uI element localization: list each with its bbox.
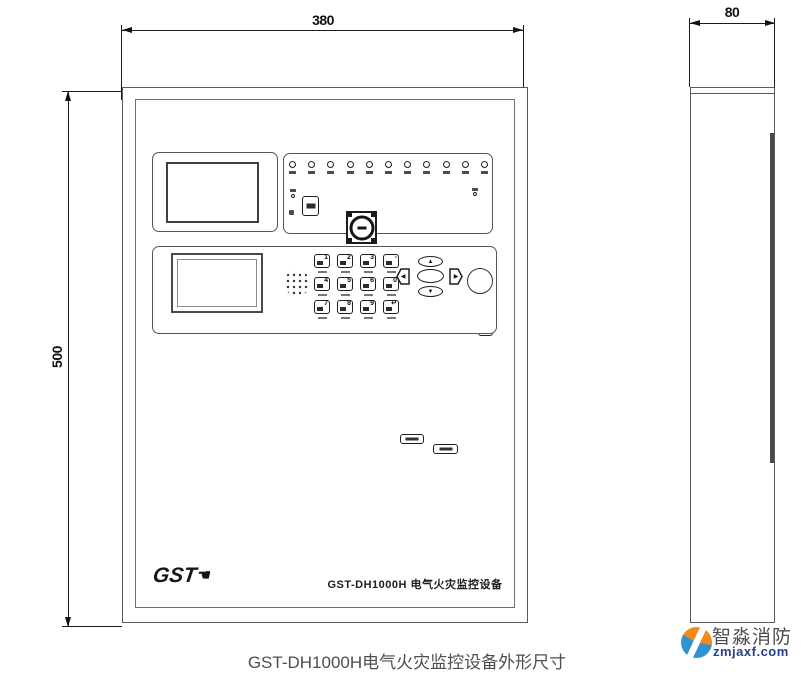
dim-label-width: 380	[293, 12, 353, 28]
indicator-led	[288, 161, 297, 174]
dim-arrow-up-icon	[65, 91, 71, 101]
key-4: 4	[314, 277, 330, 291]
dim-arrow-down-icon	[65, 617, 71, 627]
nav-down-button: ▼	[418, 286, 443, 297]
side-view-door-edge	[770, 133, 774, 463]
key-7: 7	[314, 300, 330, 314]
key-8: 8	[337, 300, 353, 314]
key-minus: -	[383, 254, 399, 268]
soft-button	[400, 434, 424, 444]
mini-led	[473, 192, 477, 196]
numeric-keypad: 1 2 3 - 4 5 6 0 7 8 9 ↵	[314, 254, 399, 314]
panel-lock	[467, 268, 493, 294]
dim-line-depth	[689, 23, 775, 24]
key-enter: ↵	[383, 300, 399, 314]
key-9: 9	[360, 300, 376, 314]
silence-button	[302, 196, 319, 216]
dim-line-height	[68, 91, 69, 627]
side-view-top-line	[690, 93, 775, 94]
soft-button	[433, 444, 458, 454]
mini-led	[291, 194, 295, 198]
dim-extension-line	[62, 91, 122, 92]
watermark-logo-icon	[681, 627, 712, 658]
indicator-led	[480, 161, 489, 174]
nav-ok-button	[417, 269, 444, 283]
key-6: 6	[360, 277, 376, 291]
drawing-canvas: 380 500 80	[0, 0, 809, 679]
figure-caption: GST-DH1000H电气火灾监控设备外形尺寸	[242, 648, 572, 673]
nav-left-button: ◀	[396, 268, 410, 285]
record-display-window	[166, 162, 259, 223]
indicator-led	[384, 161, 393, 174]
dim-extension-line	[689, 18, 690, 87]
up-arrow-icon: ▲	[428, 259, 434, 265]
mini-label	[290, 189, 296, 192]
lcd-screen	[177, 259, 257, 307]
dim-arrow-left-icon	[122, 27, 132, 33]
key-1: 1	[314, 254, 330, 268]
indicator-led	[422, 161, 431, 174]
left-arrow-icon: ◀	[401, 273, 406, 280]
right-arrow-icon: ▶	[454, 273, 459, 280]
down-arrow-icon: ▼	[428, 289, 434, 295]
dim-line-width	[121, 30, 524, 31]
indicator-led	[307, 161, 316, 174]
gst-logo: GST	[153, 564, 253, 592]
indicator-led	[403, 161, 412, 174]
dim-arrow-right-icon	[513, 27, 523, 33]
nav-right-button: ▶	[449, 268, 463, 285]
side-view-cabinet	[690, 87, 775, 623]
dim-arrow-left-icon	[690, 20, 700, 26]
indicator-led-row	[288, 161, 489, 174]
indicator-led	[326, 161, 335, 174]
dim-label-depth: 80	[702, 4, 762, 20]
key-3: 3	[360, 254, 376, 268]
indicator-led	[346, 161, 355, 174]
dim-extension-line	[62, 626, 122, 627]
nav-up-button: ▲	[418, 256, 443, 267]
mute-icon	[289, 210, 294, 215]
indicator-led	[461, 161, 470, 174]
key-2: 2	[337, 254, 353, 268]
dim-extension-line	[774, 18, 775, 87]
indicator-led	[442, 161, 451, 174]
watermark-site: zmjaxf.com	[713, 644, 789, 659]
model-title: GST-DH1000H 电气火灾监控设备	[325, 576, 505, 592]
dim-label-height: 500	[49, 327, 65, 387]
speaker-grille-icon	[284, 270, 310, 296]
key-switch	[346, 211, 377, 244]
indicator-led	[365, 161, 374, 174]
key-5: 5	[337, 277, 353, 291]
dim-arrow-right-icon	[765, 20, 775, 26]
mini-label	[472, 188, 478, 191]
